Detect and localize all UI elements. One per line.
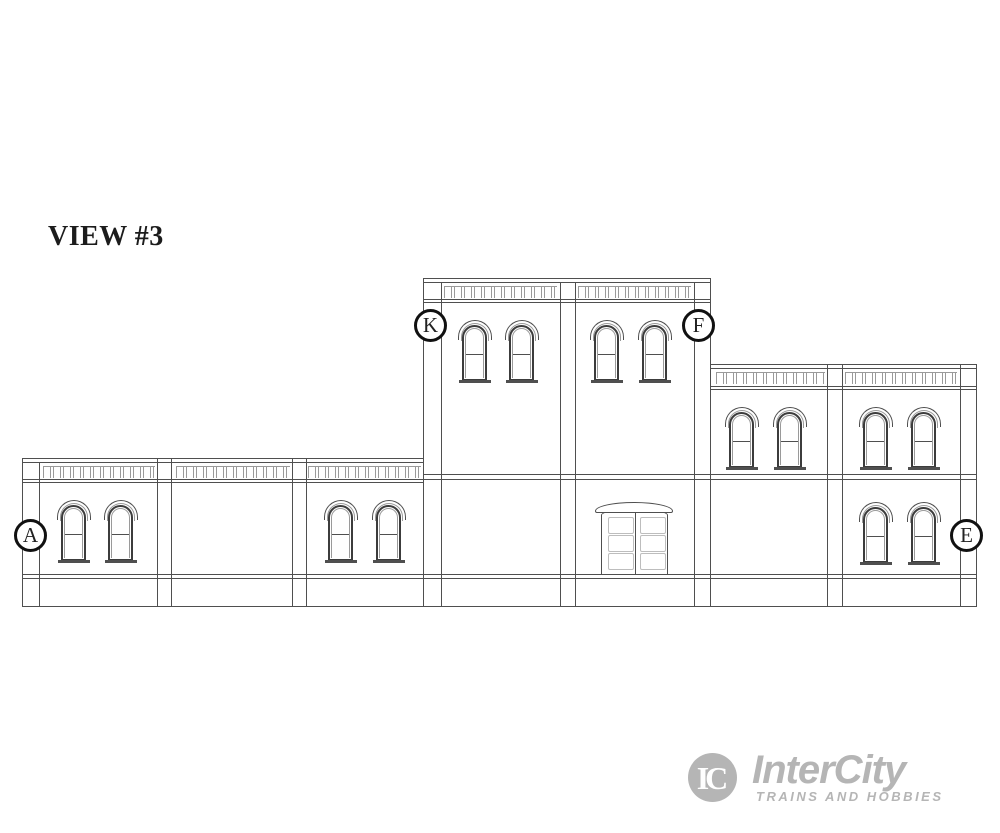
window-frame bbox=[594, 325, 619, 381]
callout-letter: A bbox=[23, 523, 38, 548]
window-sill bbox=[908, 467, 940, 470]
intercity-logo: IC InterCity TRAINS AND HOBBIES bbox=[688, 750, 978, 812]
window-frame bbox=[911, 412, 936, 468]
window-frame bbox=[376, 505, 401, 561]
window-sill bbox=[774, 467, 806, 470]
wall-line bbox=[560, 282, 561, 606]
drawing-sheet: VIEW #3 A K F E IC InterCity TRAINS AND … bbox=[0, 0, 1000, 833]
logo-brand-name: InterCity bbox=[752, 748, 905, 793]
dentil-cornice-band bbox=[308, 466, 421, 478]
arched-window bbox=[593, 320, 621, 383]
window-sill bbox=[860, 467, 892, 470]
wall-line bbox=[575, 282, 576, 606]
window-sill bbox=[908, 562, 940, 565]
callout-letter: K bbox=[423, 313, 438, 338]
arched-window bbox=[375, 500, 403, 563]
wall-line bbox=[22, 578, 977, 579]
wall-line bbox=[423, 302, 710, 303]
wall-line bbox=[306, 458, 307, 606]
wall-line bbox=[710, 364, 977, 365]
wall-line bbox=[22, 574, 977, 575]
logo-tagline: TRAINS AND HOBBIES bbox=[756, 789, 944, 804]
arched-window bbox=[862, 502, 890, 565]
callout-letter: E bbox=[960, 523, 973, 548]
logo-monogram: IC bbox=[697, 762, 729, 794]
window-sill bbox=[373, 560, 405, 563]
arched-window bbox=[910, 502, 938, 565]
window-sill bbox=[459, 380, 491, 383]
view-title: VIEW #3 bbox=[48, 221, 164, 253]
wall-line bbox=[710, 389, 977, 390]
window-frame bbox=[328, 505, 353, 561]
window-frame bbox=[108, 505, 133, 561]
window-sill bbox=[591, 380, 623, 383]
wall-line bbox=[22, 482, 424, 483]
window-sill bbox=[506, 380, 538, 383]
window-frame bbox=[642, 325, 667, 381]
double-door bbox=[601, 509, 668, 575]
window-frame bbox=[729, 412, 754, 468]
wall-line bbox=[22, 462, 424, 463]
wall-line bbox=[423, 278, 710, 279]
window-sill bbox=[105, 560, 137, 563]
dentil-cornice-band bbox=[716, 372, 825, 384]
arched-window bbox=[910, 407, 938, 470]
wall-line bbox=[710, 386, 977, 387]
wall-line bbox=[423, 282, 710, 283]
door-panel bbox=[640, 553, 666, 570]
dentil-cornice-band bbox=[43, 466, 155, 478]
dentil-cornice-band bbox=[176, 466, 290, 478]
intercity-logo-icon: IC bbox=[688, 753, 737, 802]
window-frame bbox=[509, 325, 534, 381]
window-frame bbox=[911, 507, 936, 563]
arched-window bbox=[728, 407, 756, 470]
window-sill bbox=[325, 560, 357, 563]
dentil-cornice-band bbox=[578, 286, 691, 298]
dentil-cornice-band bbox=[444, 286, 557, 298]
arched-window bbox=[641, 320, 669, 383]
window-sill bbox=[58, 560, 90, 563]
door-panel bbox=[640, 517, 666, 534]
door-panel bbox=[608, 535, 634, 552]
arched-window bbox=[461, 320, 489, 383]
wall-line bbox=[842, 364, 843, 606]
door-panel bbox=[640, 535, 666, 552]
arched-window bbox=[862, 407, 890, 470]
window-frame bbox=[61, 505, 86, 561]
callout-badge-e: E bbox=[950, 519, 983, 552]
arched-window bbox=[327, 500, 355, 563]
arched-window bbox=[60, 500, 88, 563]
wall-line bbox=[976, 364, 977, 606]
callout-badge-k: K bbox=[414, 309, 447, 342]
callout-badge-f: F bbox=[682, 309, 715, 342]
wall-line bbox=[292, 458, 293, 606]
callout-badge-a: A bbox=[14, 519, 47, 552]
window-frame bbox=[462, 325, 487, 381]
callout-letter: F bbox=[693, 313, 705, 338]
door-center-split bbox=[635, 511, 636, 574]
wall-line bbox=[710, 368, 977, 369]
window-sill bbox=[639, 380, 671, 383]
wall-line bbox=[157, 458, 158, 606]
wall-line bbox=[423, 299, 710, 300]
window-sill bbox=[860, 562, 892, 565]
wall-line bbox=[22, 479, 977, 480]
dentil-cornice-band bbox=[845, 372, 957, 384]
window-sill bbox=[726, 467, 758, 470]
window-frame bbox=[777, 412, 802, 468]
wall-line bbox=[22, 458, 424, 459]
wall-line bbox=[171, 458, 172, 606]
door-panel bbox=[608, 517, 634, 534]
wall-line bbox=[423, 474, 977, 475]
arched-window bbox=[508, 320, 536, 383]
door-arch-hood bbox=[595, 502, 673, 513]
door-panel bbox=[608, 553, 634, 570]
wall-line bbox=[827, 364, 828, 606]
arched-window bbox=[776, 407, 804, 470]
window-frame bbox=[863, 507, 888, 563]
window-frame bbox=[863, 412, 888, 468]
wall-line bbox=[22, 606, 977, 607]
arched-window bbox=[107, 500, 135, 563]
wall-line bbox=[960, 364, 961, 606]
